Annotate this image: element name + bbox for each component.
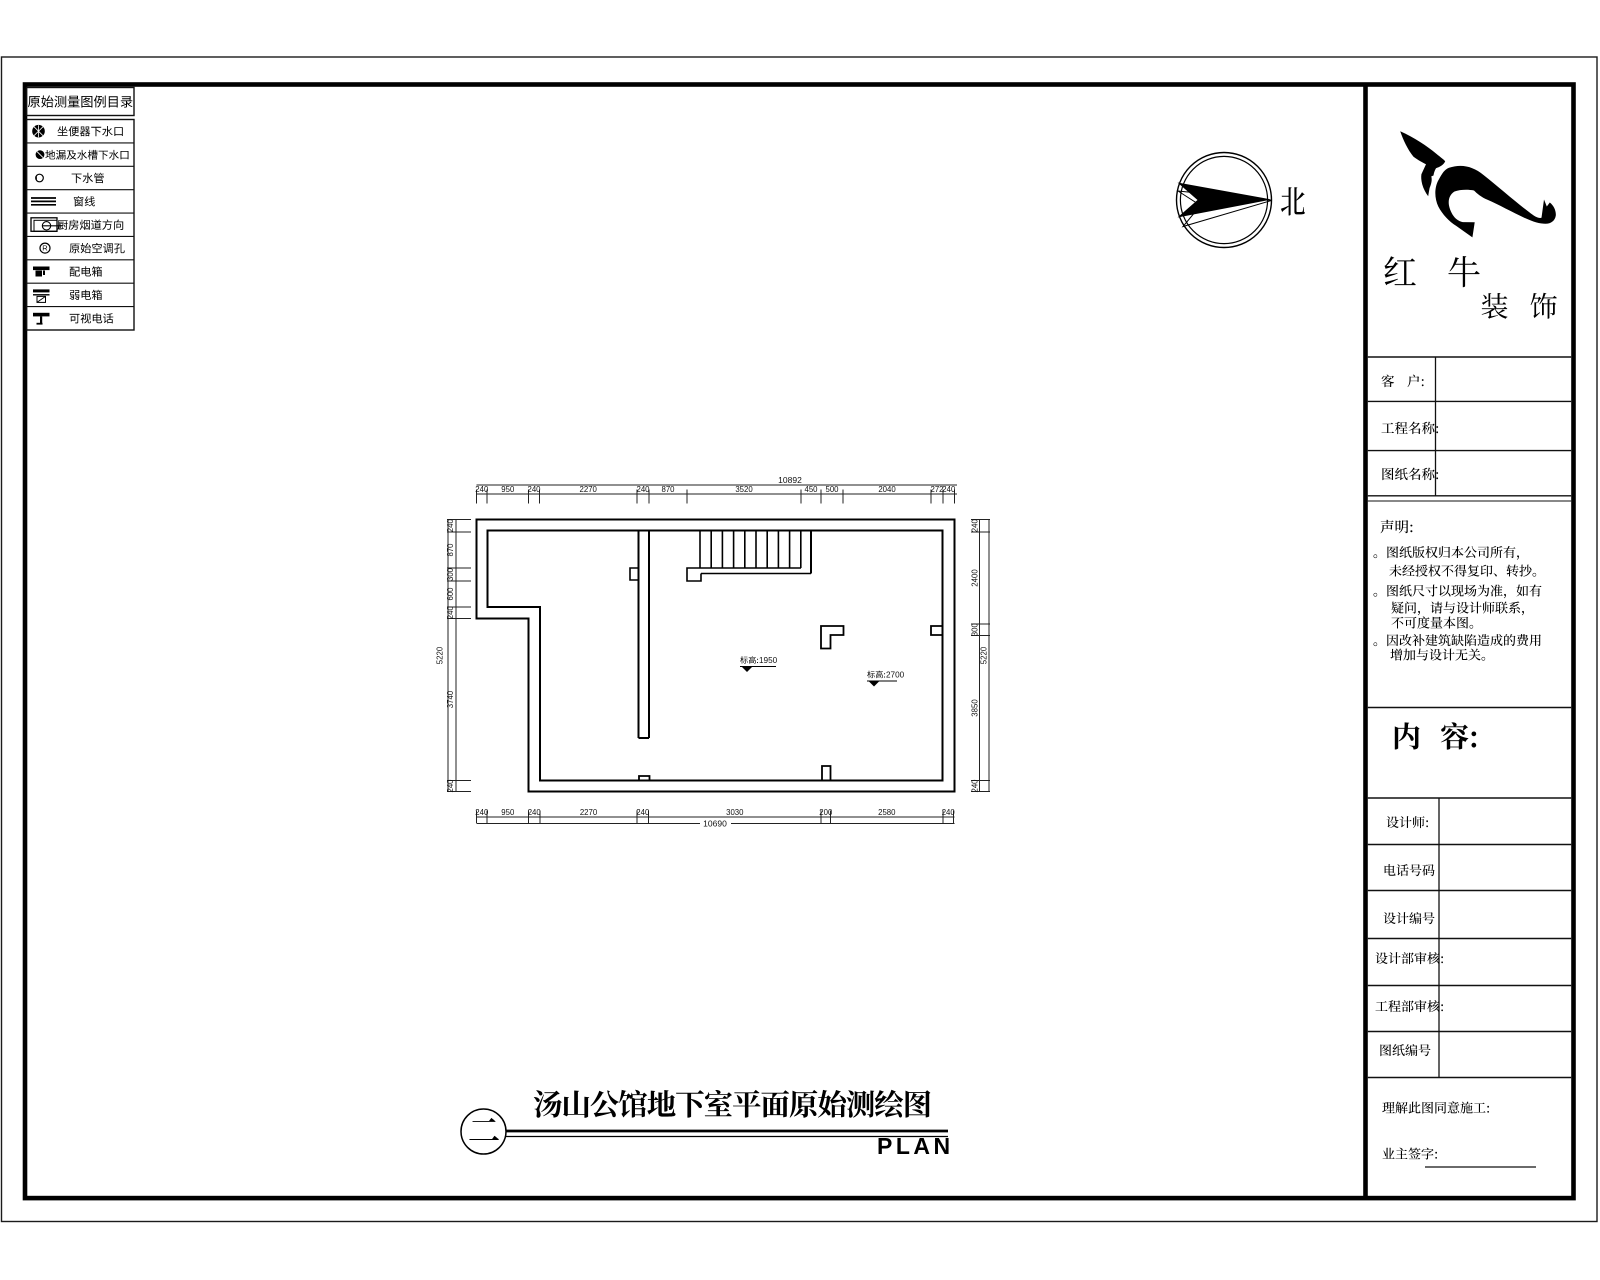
svg-text:240: 240 [527, 485, 541, 494]
svg-text:240: 240 [942, 485, 956, 494]
svg-text:3520: 3520 [735, 485, 753, 494]
svg-text:240: 240 [528, 808, 542, 817]
svg-text:240: 240 [636, 808, 650, 817]
svg-text:2580: 2580 [878, 808, 896, 817]
svg-text:2270: 2270 [580, 808, 598, 817]
svg-text:240: 240 [446, 606, 455, 620]
svg-text:300: 300 [971, 623, 980, 637]
svg-text:2040: 2040 [878, 485, 896, 494]
svg-text:950: 950 [501, 485, 515, 494]
svg-text:870: 870 [661, 485, 675, 494]
svg-text:1950: 1950 [759, 656, 778, 665]
svg-text:500: 500 [825, 485, 839, 494]
svg-text:950: 950 [501, 808, 515, 817]
svg-text:R: R [42, 244, 48, 253]
svg-text:870: 870 [446, 543, 455, 557]
svg-text:PLAN: PLAN [877, 1133, 954, 1159]
svg-text:450: 450 [804, 485, 818, 494]
svg-text:3030: 3030 [726, 808, 744, 817]
svg-text:2270: 2270 [580, 485, 598, 494]
svg-text:240: 240 [971, 519, 980, 533]
svg-text:2400: 2400 [971, 569, 980, 587]
svg-text:200: 200 [819, 808, 833, 817]
svg-text:10690: 10690 [703, 819, 727, 829]
svg-text:2700: 2700 [886, 671, 905, 680]
svg-text:240: 240 [475, 485, 489, 494]
svg-text:240: 240 [971, 779, 980, 793]
svg-text:5220: 5220 [436, 646, 445, 664]
svg-text:5220: 5220 [980, 646, 989, 664]
svg-text:10892: 10892 [778, 475, 802, 485]
svg-text:3850: 3850 [971, 699, 980, 717]
svg-text:240: 240 [475, 808, 489, 817]
svg-text:240: 240 [446, 779, 455, 793]
svg-text:240: 240 [636, 485, 650, 494]
svg-text:3740: 3740 [446, 690, 455, 708]
svg-text:240: 240 [942, 808, 956, 817]
svg-text:240: 240 [446, 519, 455, 533]
svg-text:300: 300 [446, 567, 455, 581]
svg-text:600: 600 [446, 587, 455, 601]
